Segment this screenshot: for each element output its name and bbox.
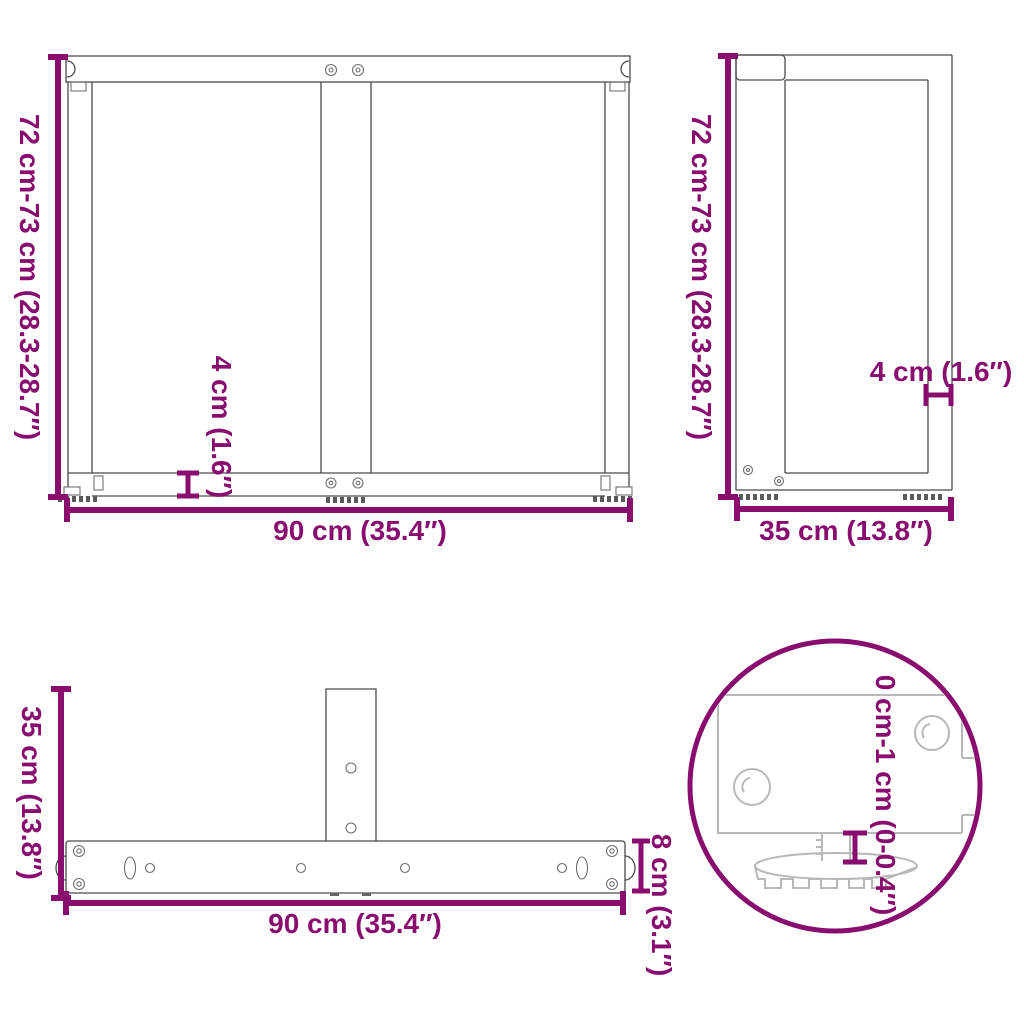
bar-thickness-marker: [177, 473, 199, 496]
foot-adjust-label: 0 cm-1 cm (0-0.4″): [870, 675, 901, 916]
front-view: 72 cm-73 cm (28.3-28.7″) 90 cm (35.4″) 4…: [14, 56, 634, 546]
screw-icon: [734, 716, 949, 805]
top-view-dimensions: 35 cm (13.8″) 90 cm (35.4″) 8 cm (3.1″): [16, 689, 677, 976]
front-width-label: 90 cm (35.4″): [273, 515, 447, 546]
screw-icon: [326, 478, 363, 488]
side-depth-label: 35 cm (13.8″): [759, 515, 933, 546]
side-height-label: 72 cm-73 cm (28.3-28.7″): [686, 114, 717, 440]
height-dimension-line: [48, 57, 68, 497]
front-height-label: 72 cm-73 cm (28.3-28.7″): [14, 114, 45, 440]
top-bar-width-label: 8 cm (3.1″): [646, 834, 677, 977]
foot-adjust-marker: [843, 833, 867, 862]
table-leg-dimension-diagram: 72 cm-73 cm (28.3-28.7″) 90 cm (35.4″) 4…: [0, 0, 1024, 1024]
detail-view-drawing: [718, 695, 998, 888]
lip-marker: [926, 384, 951, 406]
side-view: 72 cm-73 cm (28.3-28.7″) 35 cm (13.8″) 4…: [686, 55, 1012, 546]
front-view-drawing: [58, 56, 634, 500]
side-view-drawing: [736, 55, 952, 497]
front-bar-thickness-label: 4 cm (1.6″): [206, 356, 237, 499]
top-width-label: 90 cm (35.4″): [268, 908, 442, 939]
top-depth-label: 35 cm (13.8″): [16, 706, 47, 880]
top-view: 35 cm (13.8″) 90 cm (35.4″) 8 cm (3.1″): [16, 689, 677, 976]
depth-dimension-line: [51, 689, 71, 898]
side-lip-label: 4 cm (1.6″): [870, 356, 1013, 387]
top-view-drawing: [56, 689, 635, 896]
detail-view: 0 cm-1 cm (0-0.4″): [690, 641, 998, 931]
height-dimension-line: [718, 56, 738, 497]
adjustable-foot: [593, 487, 634, 499]
screw-icon: [74, 846, 618, 890]
screw-icon: [326, 65, 364, 76]
screw-icon: [744, 466, 784, 486]
